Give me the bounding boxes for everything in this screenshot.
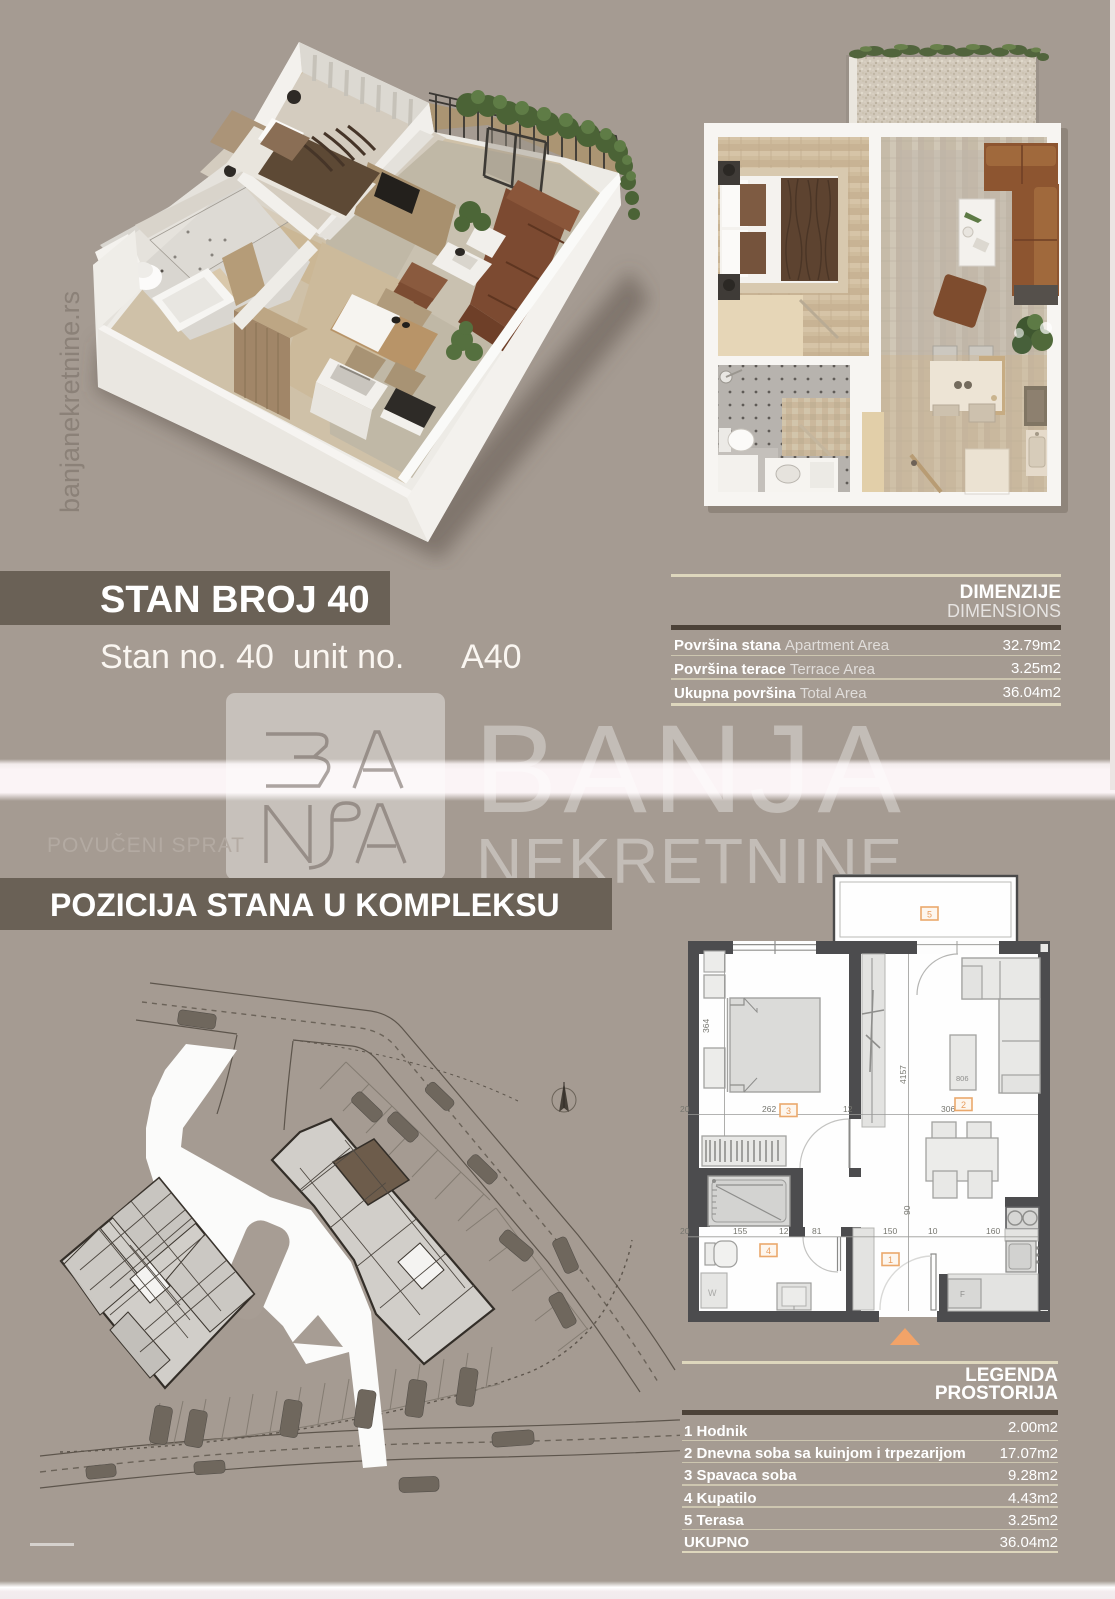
svg-text:160: 160 bbox=[986, 1226, 1000, 1236]
svg-text:1: 1 bbox=[888, 1255, 893, 1265]
svg-text:20: 20 bbox=[680, 1226, 690, 1236]
svg-text:155: 155 bbox=[733, 1226, 747, 1236]
svg-text:150: 150 bbox=[883, 1226, 897, 1236]
svg-text:81: 81 bbox=[812, 1226, 822, 1236]
svg-text:262: 262 bbox=[762, 1104, 776, 1114]
svg-text:12: 12 bbox=[843, 1104, 853, 1114]
svg-text:4: 4 bbox=[766, 1246, 771, 1256]
svg-text:806: 806 bbox=[956, 1074, 969, 1083]
svg-text:W: W bbox=[708, 1288, 717, 1298]
svg-text:10: 10 bbox=[928, 1226, 938, 1236]
svg-text:5: 5 bbox=[927, 910, 932, 920]
svg-text:306: 306 bbox=[941, 1104, 955, 1114]
svg-text:3: 3 bbox=[786, 1106, 791, 1116]
svg-text:90: 90 bbox=[902, 1205, 912, 1215]
svg-text:20: 20 bbox=[680, 1104, 690, 1114]
svg-text:364: 364 bbox=[701, 1019, 711, 1033]
svg-text:2: 2 bbox=[961, 1100, 966, 1110]
svg-text:F: F bbox=[960, 1290, 965, 1299]
svg-text:4157: 4157 bbox=[898, 1065, 908, 1084]
svg-text:12: 12 bbox=[779, 1226, 789, 1236]
